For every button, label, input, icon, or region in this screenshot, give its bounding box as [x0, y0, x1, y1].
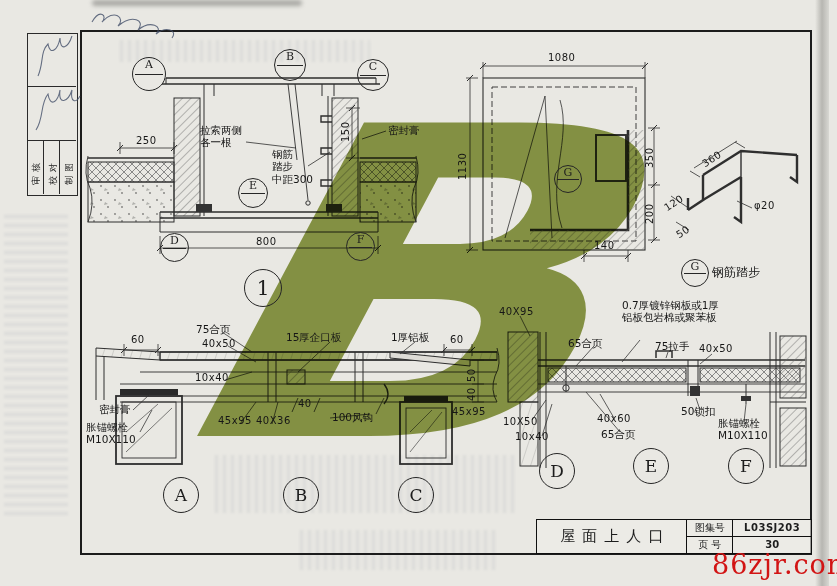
label-lock-50: 50锁扣	[681, 405, 715, 417]
label-handle-75: 75拉手	[655, 340, 689, 352]
label-40x95: 40X95	[499, 306, 534, 317]
site-watermark: 86zjr.com	[712, 549, 837, 580]
atlas-no-value: L03SJ203	[733, 520, 811, 537]
label-40x50-right: 40x50	[699, 343, 733, 354]
label-10x40-right: 10x40	[515, 431, 549, 442]
atlas-page: 审核 校对 制图	[0, 0, 837, 586]
label-40x60: 40x60	[597, 413, 631, 424]
strip-right-annotations: 40X95 0.7厚镀锌钢板或1厚 铝板包岩棉或聚苯板 65合页 75拉手 40…	[0, 0, 837, 586]
label-anchor-bolt-right: 胀锚螺栓 M10X110	[718, 417, 768, 442]
atlas-no-label: 图集号	[687, 520, 733, 537]
label-galv-sheet-note: 0.7厚镀锌钢板或1厚 铝板包岩棉或聚苯板	[622, 299, 719, 324]
drawing-title: 屋面上人口	[537, 520, 686, 553]
label-hinge-65-bottom: 65合页	[601, 428, 635, 440]
label-hinge-65-top: 65合页	[568, 337, 602, 349]
label-10x50: 10X50	[503, 416, 538, 427]
